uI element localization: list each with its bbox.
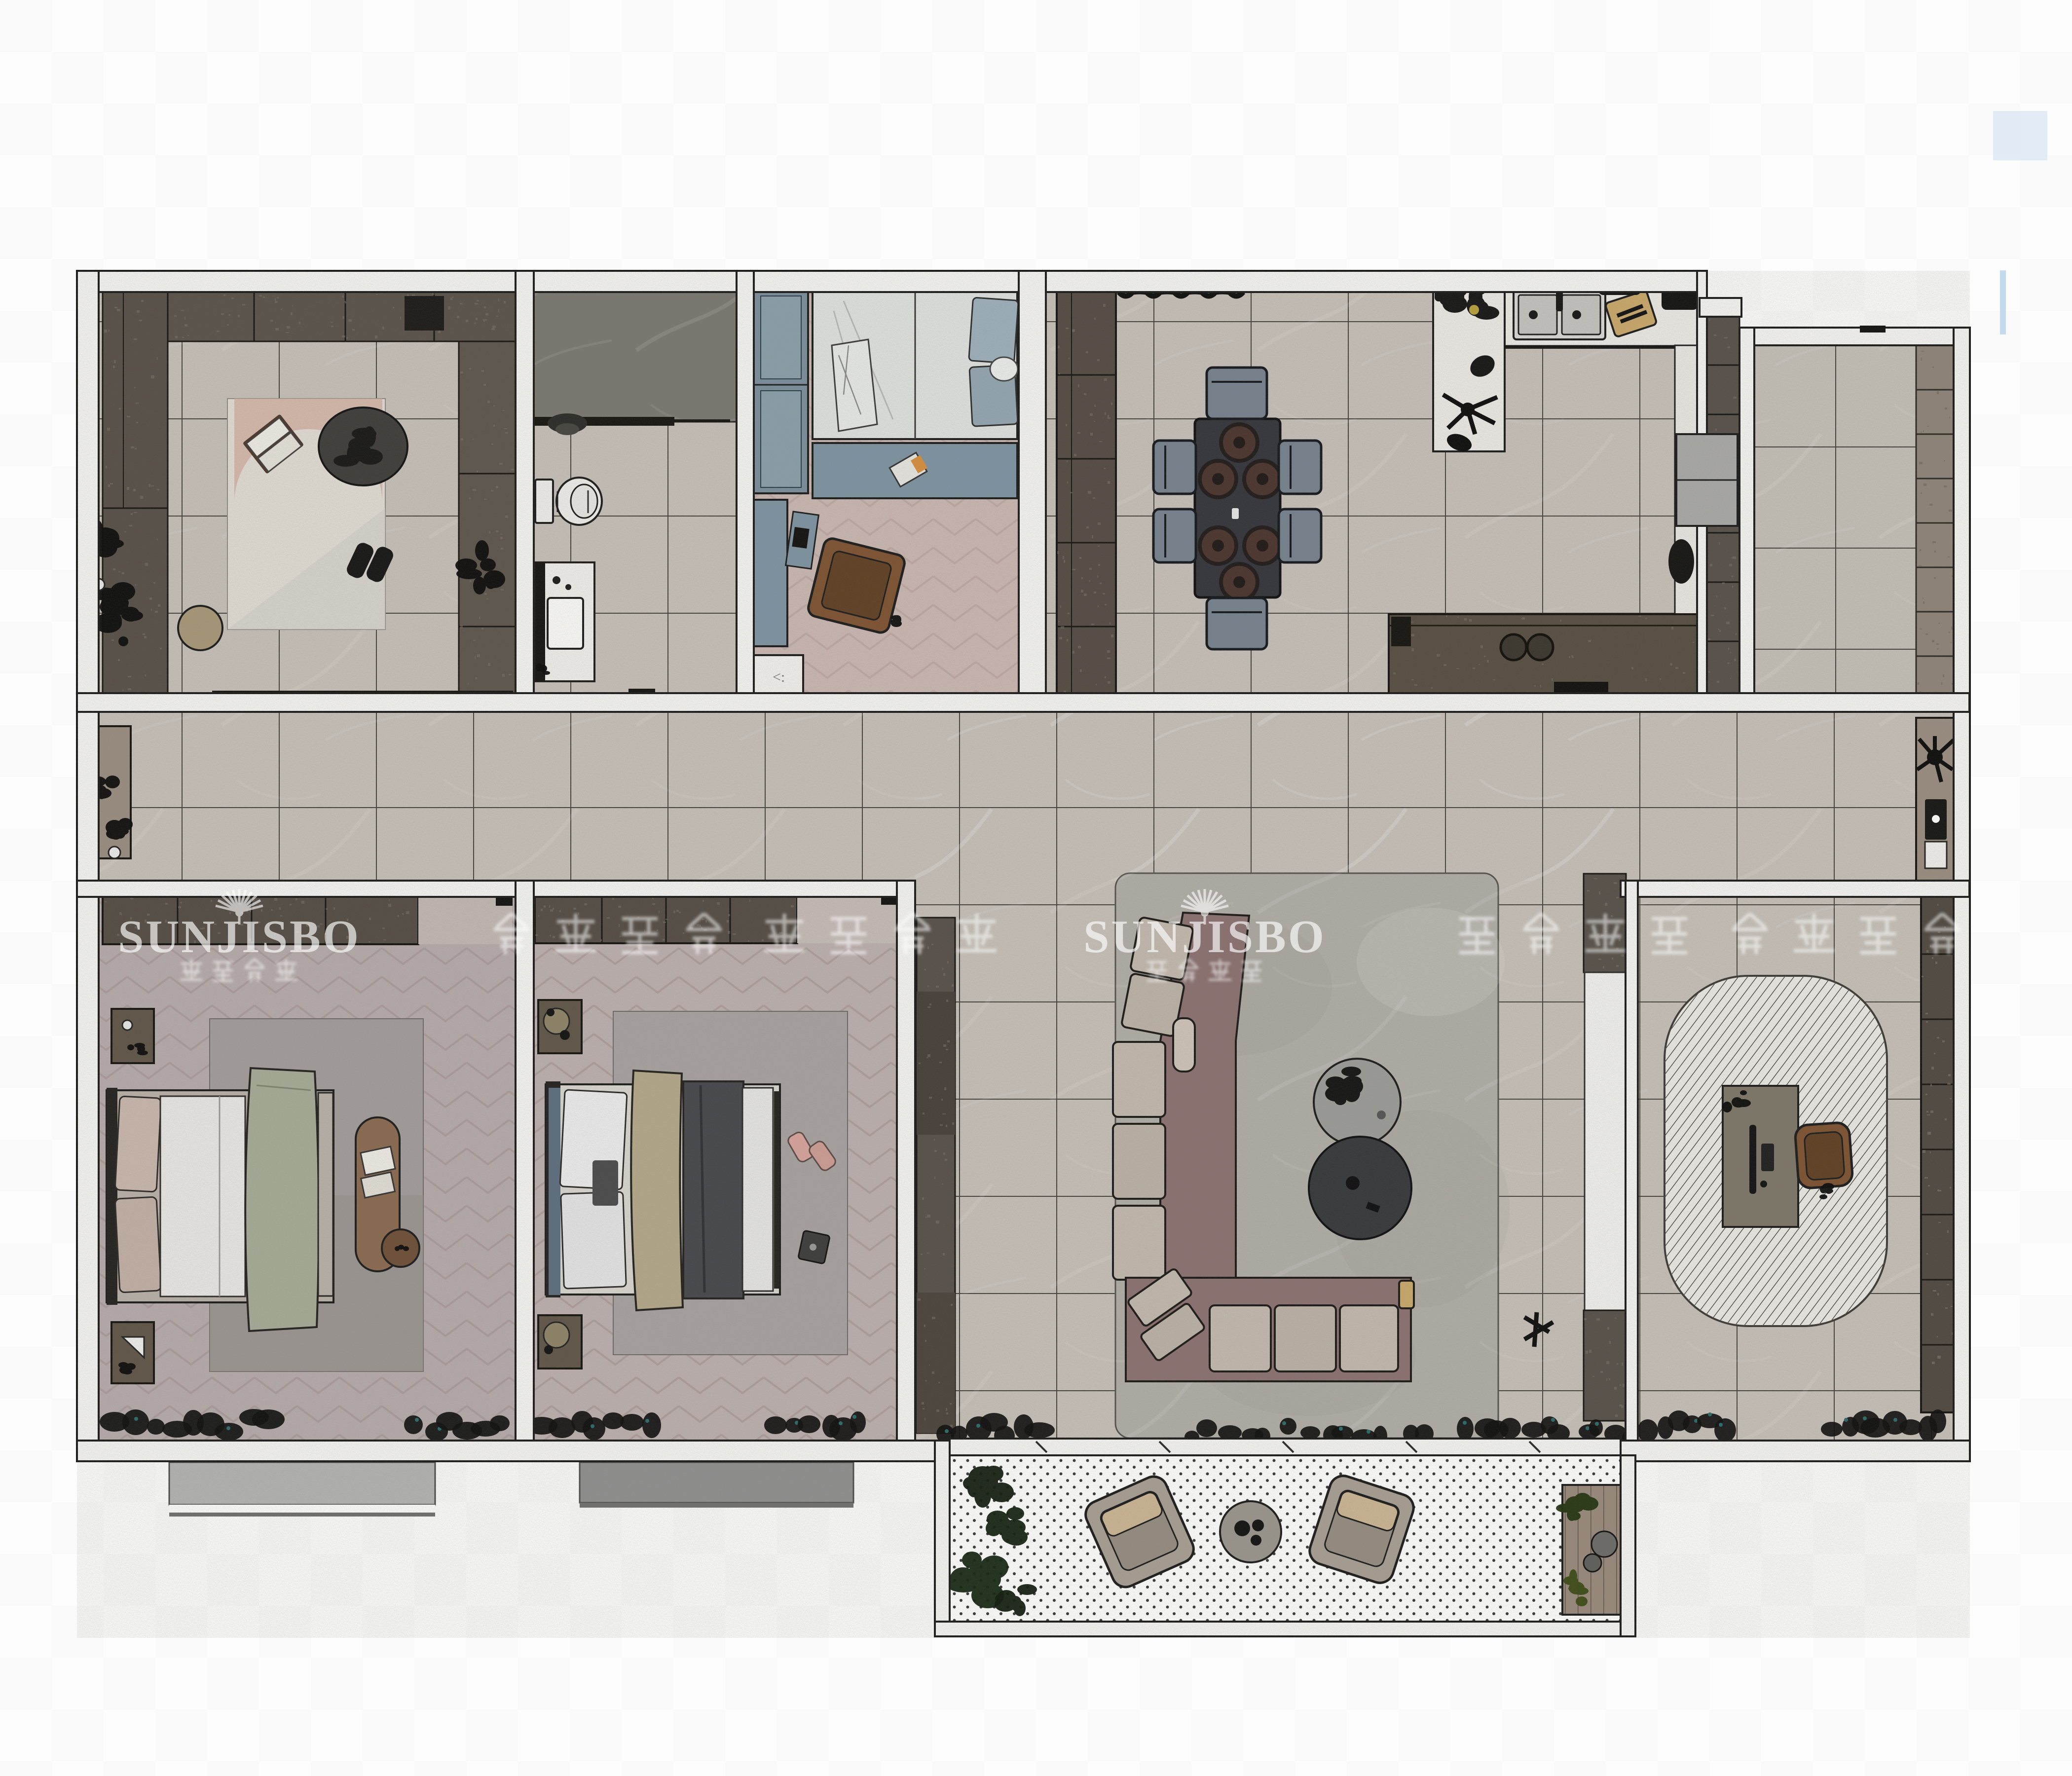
svg-text:SUNJISBO: SUNJISBO [118, 911, 361, 962]
svg-text:SUNJISBO: SUNJISBO [1083, 911, 1326, 962]
